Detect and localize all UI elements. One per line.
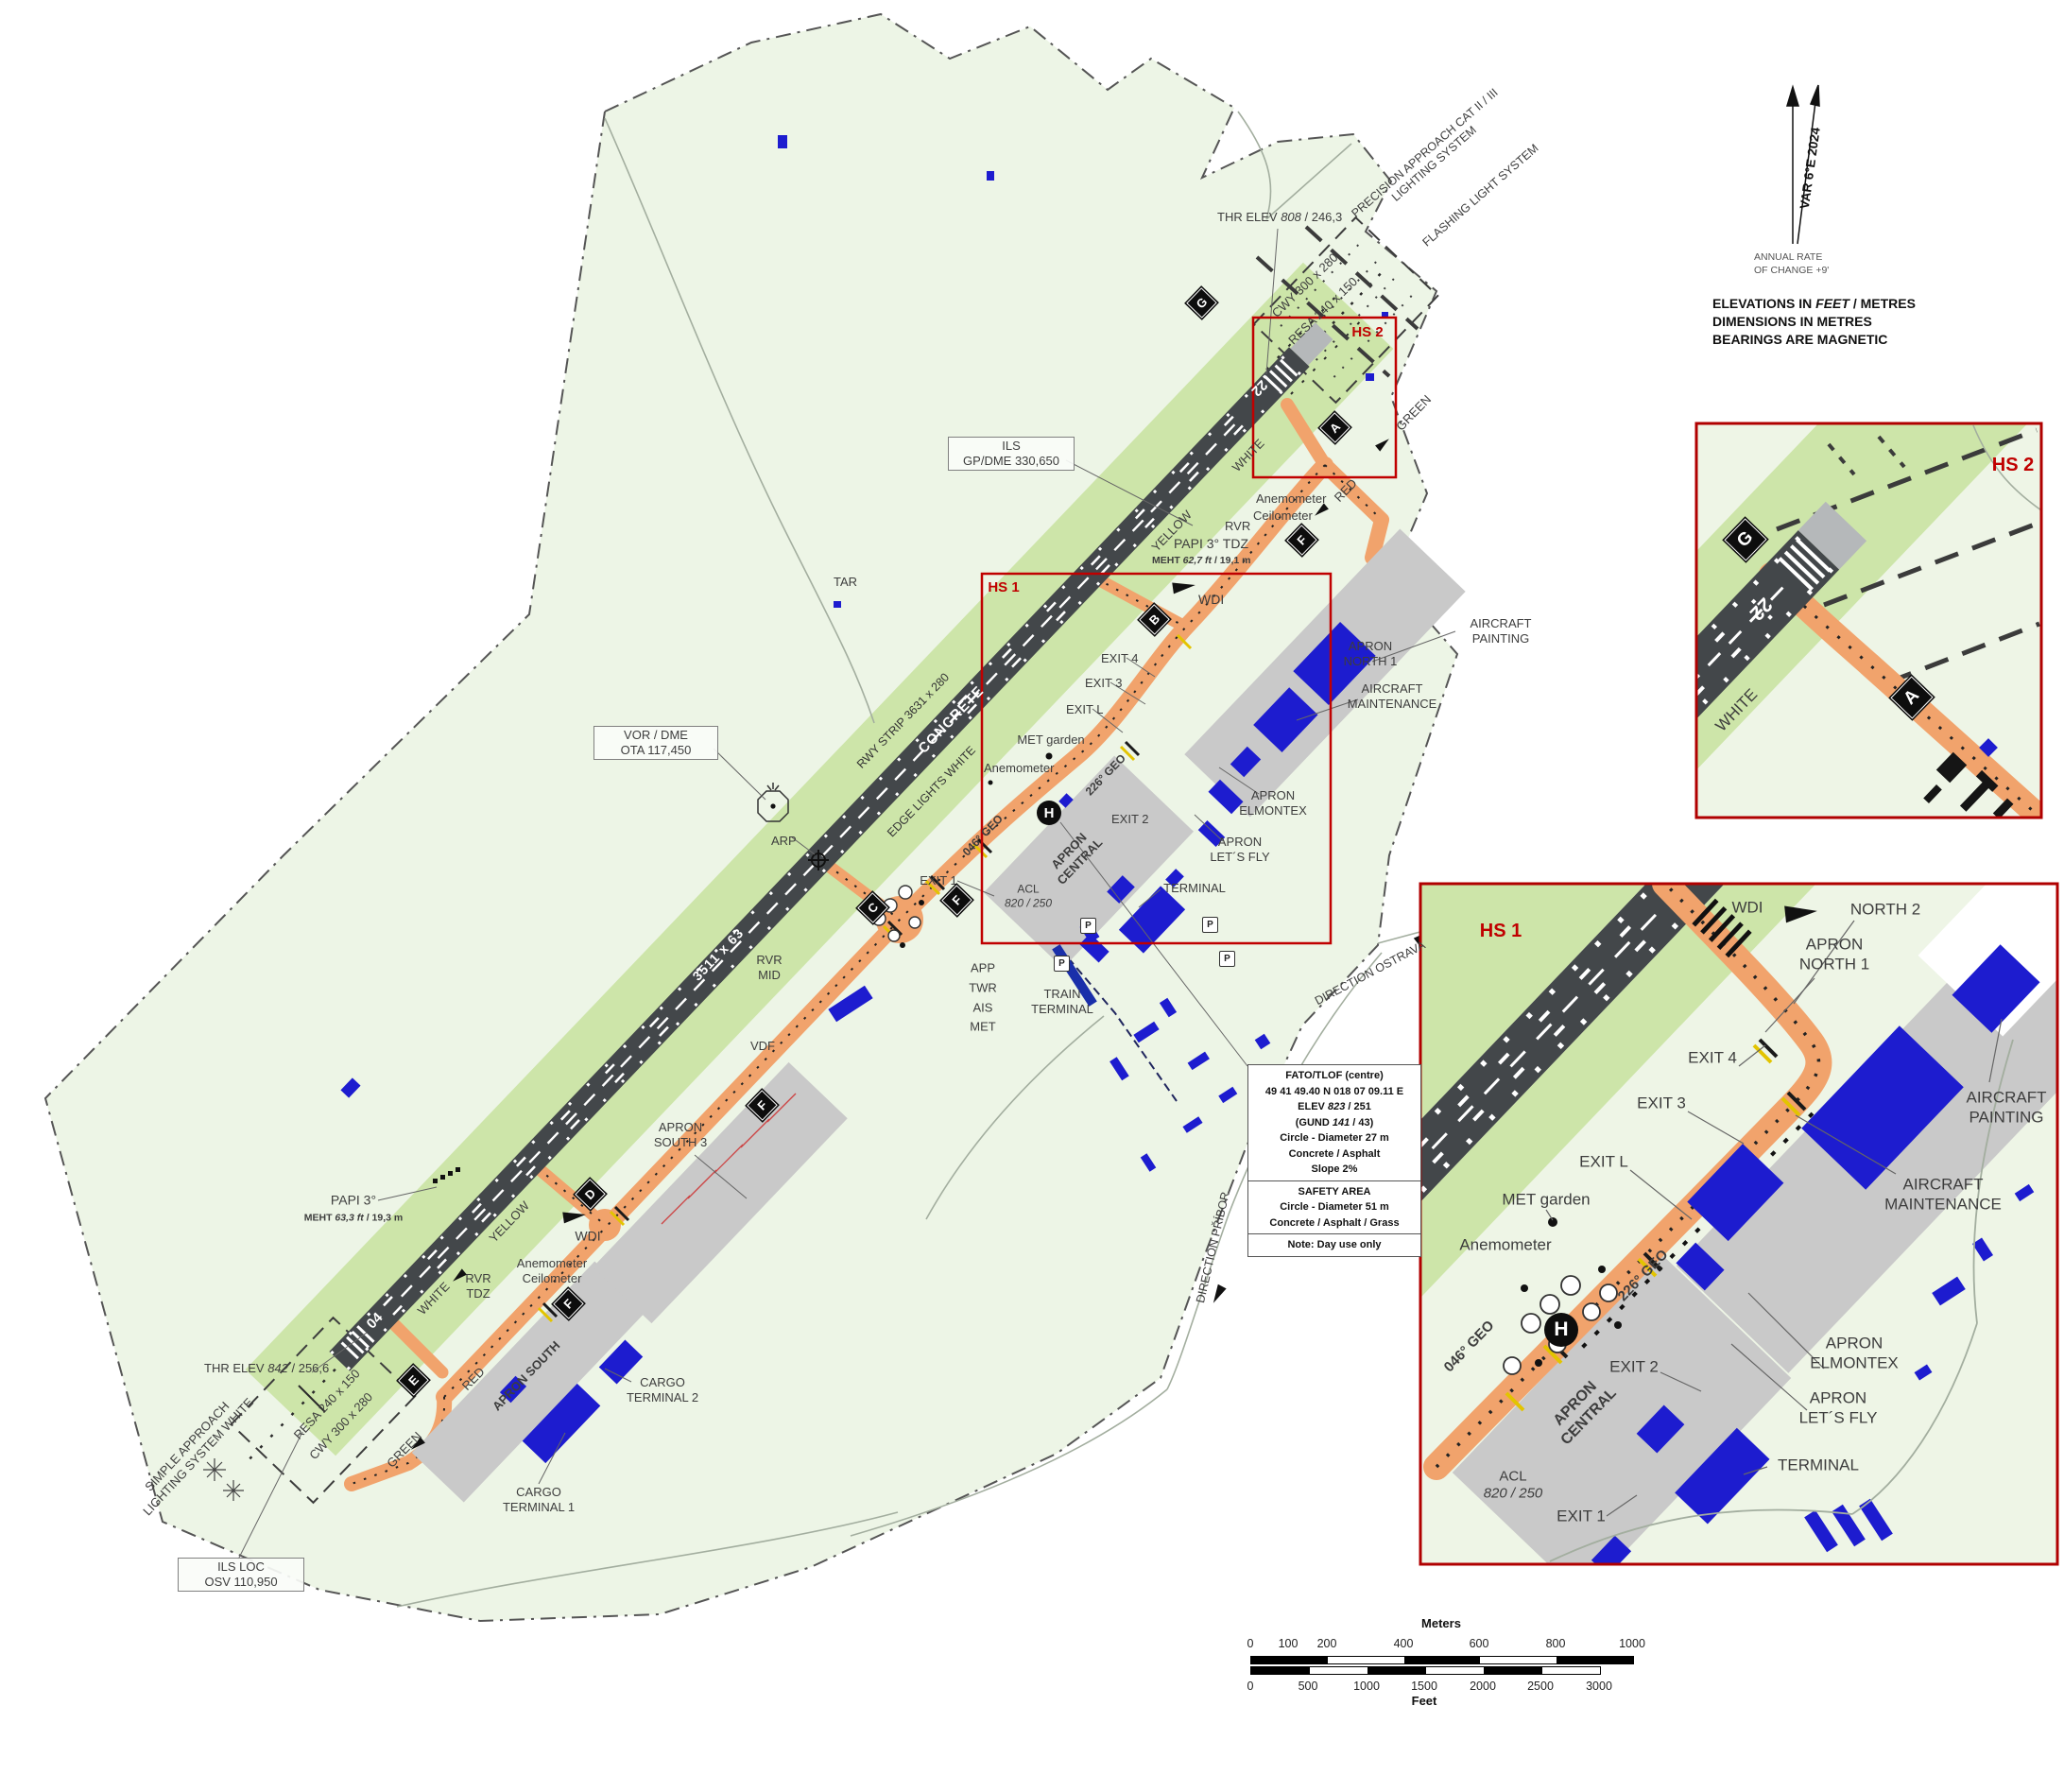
annual-rate-note: ANNUAL RATEOF CHANGE +9' bbox=[1754, 251, 1829, 277]
thr-elev-22: THR ELEV 808 / 246,3 bbox=[1217, 210, 1342, 225]
thr-elev-04: THR ELEV 842 / 256,6 bbox=[204, 1361, 329, 1376]
meht-22: MEHT 62,7 ft / 19,1 m bbox=[1152, 555, 1250, 567]
terminal-label: TERMINAL bbox=[1163, 881, 1226, 896]
anemometer-north: Anemometer bbox=[1256, 491, 1326, 507]
scale-tick: 800 bbox=[1546, 1637, 1566, 1650]
ils-gp-box: ILSGP/DME 330,650 bbox=[948, 437, 1075, 471]
hs2-inset-title: HS 2 bbox=[1992, 454, 2034, 476]
terminal-inset-label: TERMINAL bbox=[1778, 1456, 1859, 1476]
scale-tick: 1000 bbox=[1353, 1680, 1380, 1693]
exit2-inset-label: EXIT 2 bbox=[1609, 1358, 1659, 1378]
scale-tick: 1000 bbox=[1619, 1637, 1645, 1650]
cargo-terminal2-label: CARGOTERMINAL 2 bbox=[627, 1375, 698, 1405]
hs1-area-label: HS 1 bbox=[988, 579, 1019, 596]
arp-label: ARP bbox=[771, 834, 797, 849]
scale-tick: 0 bbox=[1247, 1680, 1254, 1693]
apron-elmontex-label: APRONELMONTEX bbox=[1239, 788, 1307, 818]
scale-tick: 0 bbox=[1247, 1637, 1254, 1650]
scale-bar-meters bbox=[1250, 1656, 1634, 1664]
exitl-label: EXIT L bbox=[1066, 702, 1104, 717]
apron-letsfly-label: APRONLET´S FLY bbox=[1210, 835, 1269, 865]
met-garden-label: MET garden bbox=[1017, 732, 1084, 748]
aircraft-maintenance-label: AIRCRAFTMAINTENANCE bbox=[1348, 681, 1437, 712]
met-garden-inset-label: MET garden bbox=[1502, 1191, 1590, 1211]
exitl-inset-label: EXIT L bbox=[1579, 1153, 1628, 1173]
papi-south-label: PAPI 3° bbox=[331, 1192, 376, 1208]
scale-feet-title: Feet bbox=[1412, 1694, 1437, 1709]
parking-sign: P bbox=[1054, 956, 1070, 972]
exit1-inset-label: EXIT 1 bbox=[1557, 1508, 1606, 1527]
aircraft-painting-label: AIRCRAFTPAINTING bbox=[1471, 616, 1532, 646]
scale-tick: 600 bbox=[1470, 1637, 1489, 1650]
scale-tick: 1500 bbox=[1411, 1680, 1437, 1693]
rvr-mid-label: RVRMID bbox=[756, 953, 782, 983]
helipad-h: H bbox=[1037, 801, 1061, 825]
hs1-inset-title: HS 1 bbox=[1480, 920, 1522, 942]
scale-bar-feet bbox=[1250, 1666, 1601, 1675]
acl-label: ACL820 / 250 bbox=[1005, 882, 1052, 909]
ils-loc-box: ILS LOCOSV 110,950 bbox=[178, 1558, 304, 1592]
aerodrome-chart: VAR 6°E 2024 ANNUAL RATEOF CHANGE +9' EL… bbox=[0, 0, 2064, 1792]
scale-tick: 200 bbox=[1317, 1637, 1337, 1650]
helipad-h-inset: H bbox=[1544, 1313, 1578, 1347]
parking-sign: P bbox=[1202, 917, 1218, 933]
cargo-terminal1-label: CARGOTERMINAL 1 bbox=[503, 1485, 575, 1515]
chart-notes: ELEVATIONS IN FEET / METRES DIMENSIONS I… bbox=[1712, 295, 1916, 349]
tar-label: TAR bbox=[834, 575, 857, 590]
meht-04: MEHT 63,3 ft / 19,3 m bbox=[304, 1213, 403, 1225]
anemometer-inset-label: Anemometer bbox=[1459, 1236, 1551, 1256]
app-twr-ais-met-label: APPTWRAISMET bbox=[969, 958, 997, 1037]
acl-inset-label: ACL820 / 250 bbox=[1484, 1469, 1543, 1504]
scale-tick: 3000 bbox=[1586, 1680, 1612, 1693]
wdi-north-label: WDI bbox=[1198, 592, 1224, 608]
papi-tdz-label: PAPI 3° TDZ bbox=[1174, 536, 1248, 552]
scale-tick: 2000 bbox=[1470, 1680, 1496, 1693]
scale-tick: 100 bbox=[1279, 1637, 1299, 1650]
wdi-south-label: WDI bbox=[575, 1228, 600, 1244]
ceilometer-north: Ceilometer bbox=[1253, 508, 1313, 524]
fato-tlof-info-box: FATO/TLOF (centre) 49 41 49.40 N 018 07 … bbox=[1247, 1064, 1421, 1257]
wdi-inset-label: WDI bbox=[1731, 899, 1763, 919]
hs2-area-label: HS 2 bbox=[1351, 324, 1383, 341]
exit3-label: EXIT 3 bbox=[1085, 676, 1123, 691]
apron-north1-label: APRONNORTH 1 bbox=[1344, 639, 1398, 669]
aircraft-maintenance-inset-label: AIRCRAFTMAINTENANCE bbox=[1884, 1175, 2002, 1214]
exit4-inset-label: EXIT 4 bbox=[1688, 1049, 1737, 1069]
exit2-label: EXIT 2 bbox=[1111, 812, 1149, 827]
anemometer-south-label: AnemometerCeilometer bbox=[517, 1256, 587, 1286]
parking-sign: P bbox=[1219, 951, 1235, 967]
rvr-north: RVR bbox=[1225, 519, 1250, 534]
scale-meters-title: Meters bbox=[1421, 1616, 1461, 1631]
scale-tick: 400 bbox=[1394, 1637, 1414, 1650]
anemometer-central: Anemometer bbox=[984, 761, 1054, 776]
scale-tick: 500 bbox=[1299, 1680, 1318, 1693]
vdf-label: VDF bbox=[750, 1039, 775, 1054]
rvr-tdz-label: RVRTDZ bbox=[465, 1271, 490, 1301]
exit4-label: EXIT 4 bbox=[1101, 651, 1139, 666]
exit3-inset-label: EXIT 3 bbox=[1637, 1094, 1686, 1114]
apron-letsfly-inset-label: APRONLET´S FLY bbox=[1799, 1388, 1878, 1427]
scale-tick: 2500 bbox=[1527, 1680, 1554, 1693]
vor-dme-box: VOR / DMEOTA 117,450 bbox=[593, 726, 718, 760]
north2-inset-label: NORTH 2 bbox=[1850, 901, 1920, 921]
apron-elmontex-inset-label: APRONELMONTEX bbox=[1810, 1334, 1899, 1372]
parking-sign: P bbox=[1080, 918, 1096, 934]
exit1-label: EXIT 1 bbox=[920, 873, 957, 888]
aircraft-painting-inset-label: AIRCRAFTPAINTING bbox=[1967, 1088, 2047, 1127]
apron-north1-inset-label: APRONNORTH 1 bbox=[1799, 935, 1869, 974]
apron-south3-label: APRONSOUTH 3 bbox=[654, 1120, 707, 1150]
train-terminal-label: TRAINTERMINAL bbox=[1031, 987, 1093, 1017]
